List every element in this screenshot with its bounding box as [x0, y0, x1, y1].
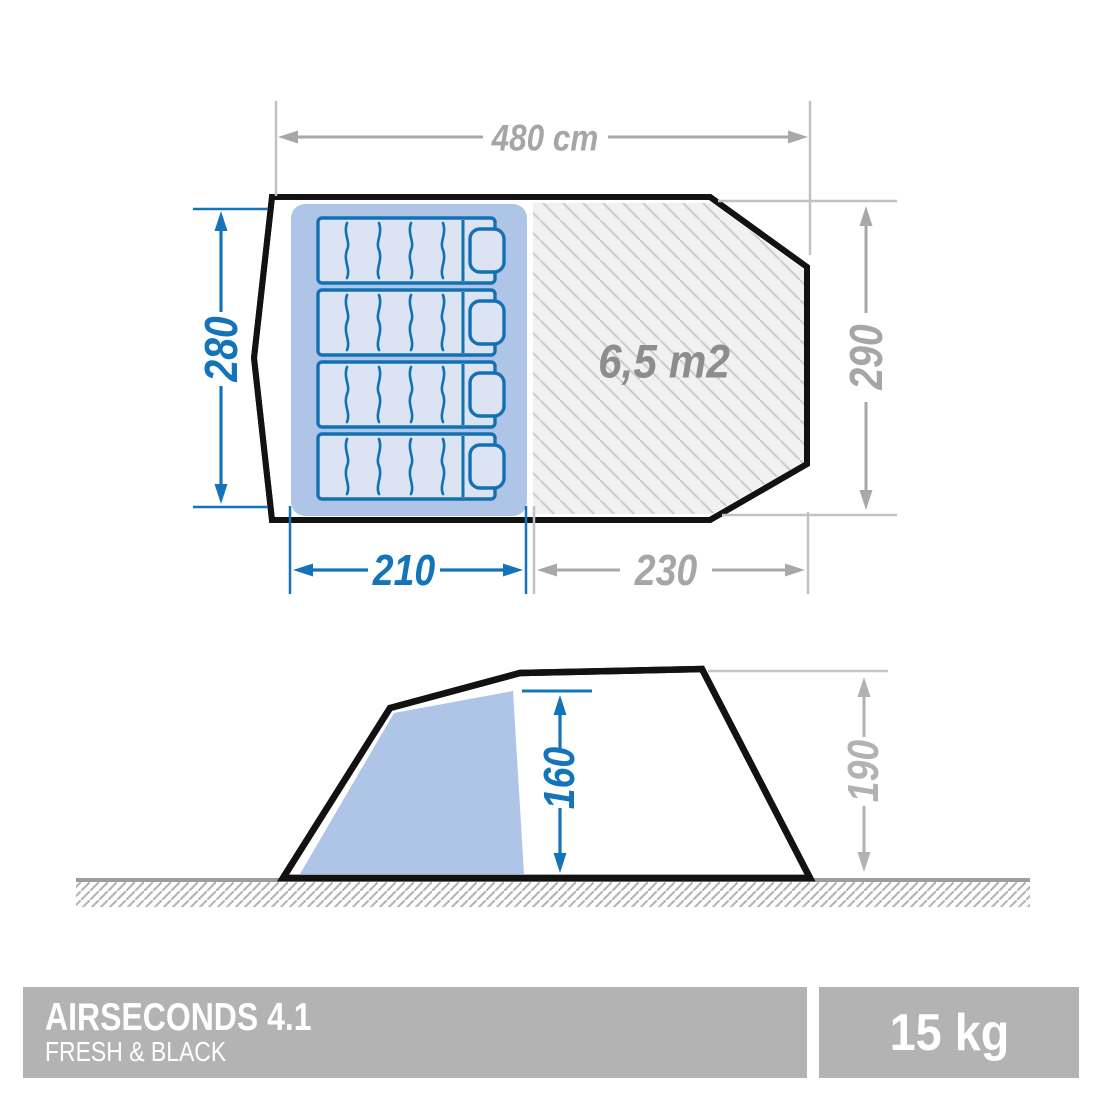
dim-label-total-depth: 290 — [843, 324, 889, 389]
top-view — [193, 101, 897, 594]
diagram-canvas — [0, 0, 1100, 1100]
mattress-4 — [318, 434, 504, 499]
mattress-3 — [318, 362, 504, 427]
dim-label-width-total: 480 cm — [492, 120, 599, 157]
product-info-bar: AIRSECONDS 4.1 FRESH & BLACK — [23, 987, 807, 1078]
tent-dimensions-figure: 480 cm 280 290 210 230 6,5 m2 160 190 AI… — [0, 0, 1100, 1100]
dim-label-sleeping-depth: 280 — [198, 316, 244, 381]
living-area-size-label: 6,5 m2 — [598, 338, 730, 385]
dim-label-interior-height: 160 — [538, 747, 582, 809]
mattress-1 — [318, 218, 504, 283]
mattress-2 — [318, 290, 504, 355]
dim-label-total-height: 190 — [842, 740, 886, 802]
product-name: AIRSECONDS 4.1 — [45, 1000, 670, 1036]
ground-hatch — [76, 882, 1030, 907]
weight-value: 15 kg — [889, 1003, 1009, 1063]
sleeping-cabin-profile — [300, 691, 524, 874]
dim-label-living-length: 230 — [635, 549, 697, 593]
dim-label-sleeping-length: 210 — [373, 549, 435, 593]
product-line: FRESH & BLACK — [45, 1038, 670, 1066]
weight-badge: 15 kg — [819, 987, 1079, 1078]
